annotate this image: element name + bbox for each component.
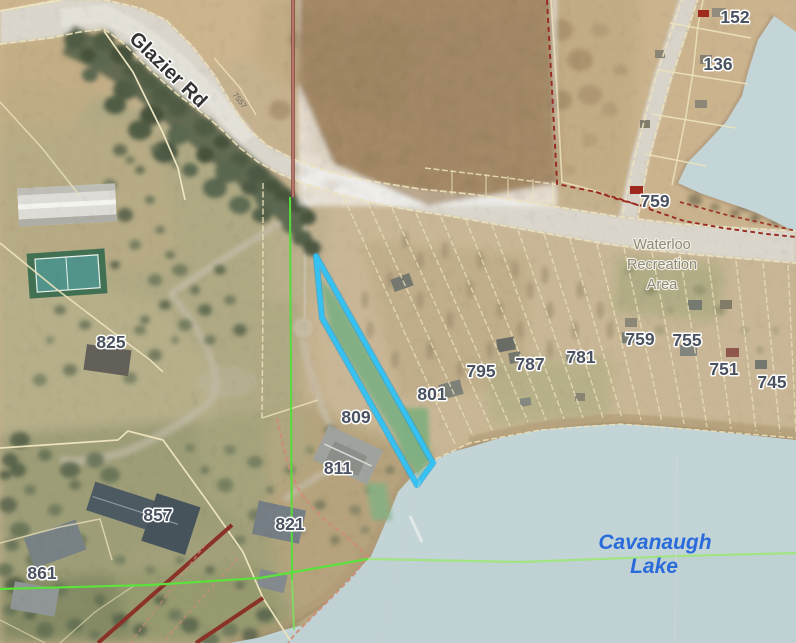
- svg-text:745: 745: [757, 372, 786, 392]
- svg-text:Area: Area: [647, 277, 679, 293]
- svg-text:755: 755: [672, 330, 701, 350]
- svg-text:811: 811: [324, 458, 352, 478]
- svg-text:795: 795: [466, 361, 495, 381]
- svg-text:801: 801: [417, 384, 446, 404]
- svg-text:152: 152: [720, 7, 749, 27]
- svg-text:759: 759: [625, 329, 654, 349]
- svg-text:Lake: Lake: [630, 555, 678, 578]
- svg-text:821: 821: [275, 514, 304, 534]
- svg-text:759: 759: [640, 191, 669, 211]
- svg-text:825: 825: [96, 332, 125, 352]
- svg-text:781: 781: [566, 347, 595, 367]
- svg-text:Recreation: Recreation: [627, 257, 697, 273]
- svg-text:787: 787: [515, 354, 544, 374]
- svg-text:Cavanaugh: Cavanaugh: [598, 531, 711, 554]
- svg-text:809: 809: [341, 407, 370, 427]
- svg-text:857: 857: [143, 505, 172, 525]
- svg-text:861: 861: [27, 563, 56, 583]
- svg-text:136: 136: [703, 54, 732, 74]
- svg-text:Waterloo: Waterloo: [633, 237, 690, 253]
- svg-text:751: 751: [709, 359, 738, 379]
